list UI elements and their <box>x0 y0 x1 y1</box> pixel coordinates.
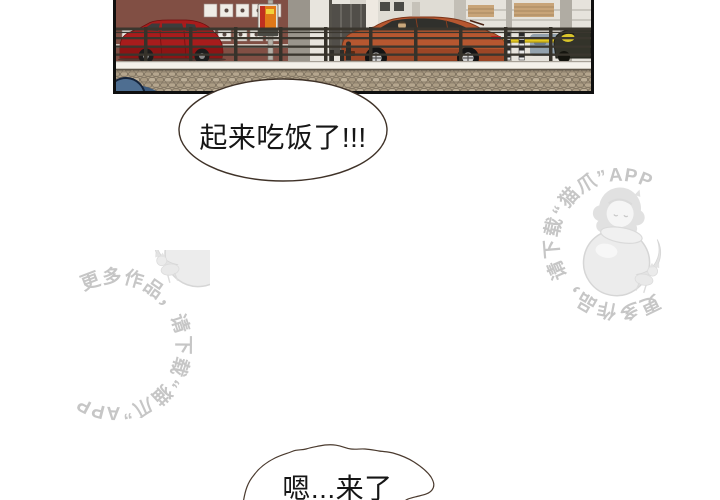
speech-bubble-top: 起来吃饭了!!! <box>170 70 396 188</box>
watermark-right: 更多作品，请下载“猫爪”APP <box>525 148 715 338</box>
wall-ledge <box>116 61 591 69</box>
watermark-left: 更多作品，请下载“猫爪”APP <box>20 250 210 440</box>
comic-page: 起来吃饭了!!! 更多作品，请下载“猫爪”APP 更多作品，请下载“猫爪”APP… <box>0 0 720 500</box>
watermark-text-circle: 更多作品，请下载“猫爪”APP <box>73 265 194 424</box>
bubble-top-text: 起来吃饭了!!! <box>170 116 396 156</box>
watermark-girl-illustration-right <box>578 182 672 303</box>
bubble-bottom-text: 嗯...来了 <box>235 467 440 500</box>
speech-bubble-bottom: 嗯...来了 <box>235 438 440 500</box>
